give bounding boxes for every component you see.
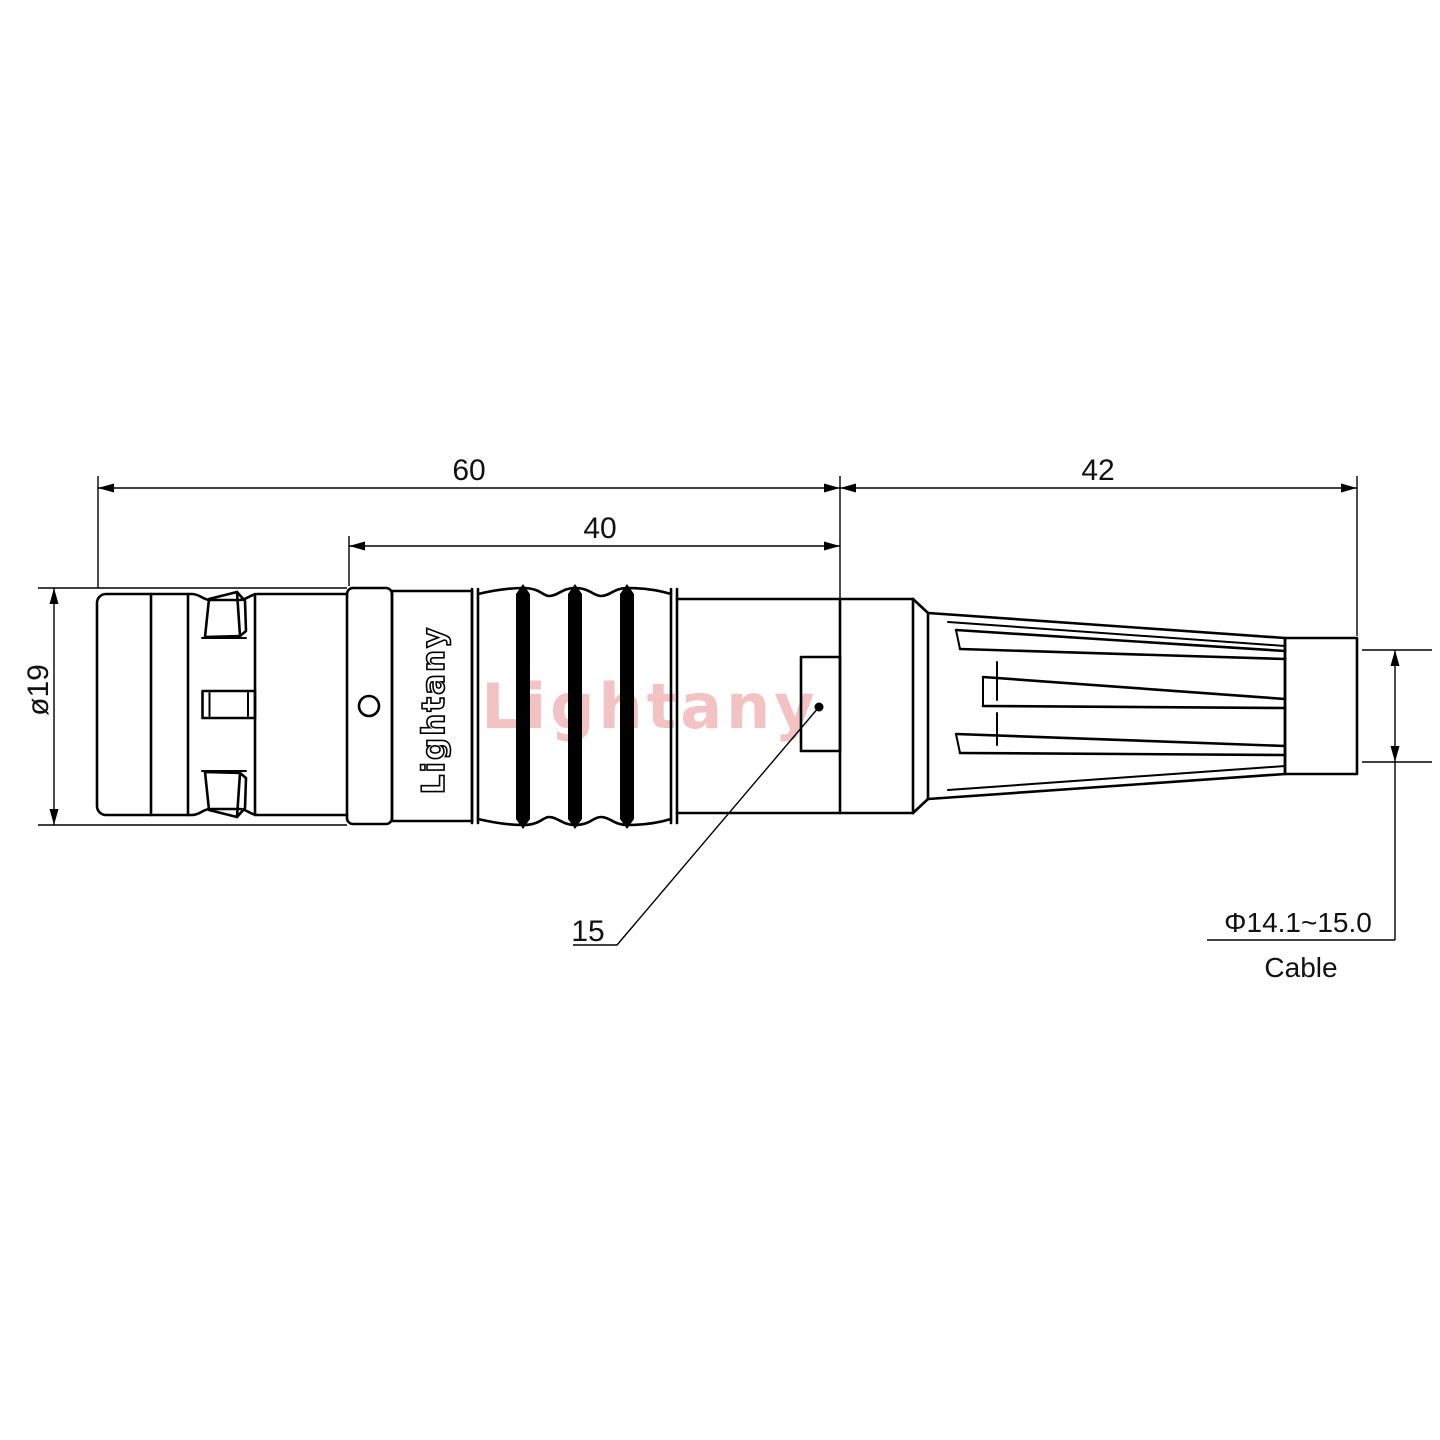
- dim-diameter-label: ø19: [22, 664, 55, 716]
- dim-42-label: 42: [1081, 454, 1114, 487]
- cable-label: Cable: [1264, 952, 1337, 983]
- dim-40-label: 40: [583, 512, 616, 545]
- technical-drawing-canvas: Lightany Lightany: [0, 0, 1440, 1440]
- cable-diameter-range-label: Φ14.1~15.0: [1224, 907, 1372, 938]
- coupling-nut: [840, 599, 928, 813]
- front-release-sleeve: [97, 592, 347, 817]
- cable-exit-tip: [1285, 638, 1357, 774]
- collar-ring: [347, 588, 392, 824]
- dimension-rear-length: 42: [840, 454, 1357, 636]
- knurl-band: [516, 584, 530, 829]
- boot-fin: [956, 734, 1285, 755]
- dim-60-label: 60: [452, 454, 485, 487]
- dimension-overall-length: 60: [98, 454, 840, 599]
- brand-watermark: Lightany: [481, 670, 818, 743]
- vent-hole: [359, 696, 379, 716]
- locking-slot: [203, 691, 256, 718]
- dimension-cable-diameter: Φ14.1~15.0 Cable: [1207, 650, 1432, 983]
- dimension-clamp-feature: 15: [571, 707, 819, 948]
- dimension-body-length: 40: [349, 512, 840, 586]
- dim-15-label: 15: [571, 915, 604, 948]
- branded-barrel: Lightany: [392, 591, 472, 821]
- connector-dimension-drawing: Lightany Lightany: [0, 0, 1440, 1440]
- knurl-band: [568, 584, 582, 829]
- brand-engraving-text: Lightany: [416, 626, 452, 795]
- knurl-band: [620, 584, 634, 829]
- dimension-shell-diameter: ø19: [22, 588, 347, 825]
- strain-relief-boot: [928, 613, 1357, 799]
- boot-fin: [983, 677, 1285, 708]
